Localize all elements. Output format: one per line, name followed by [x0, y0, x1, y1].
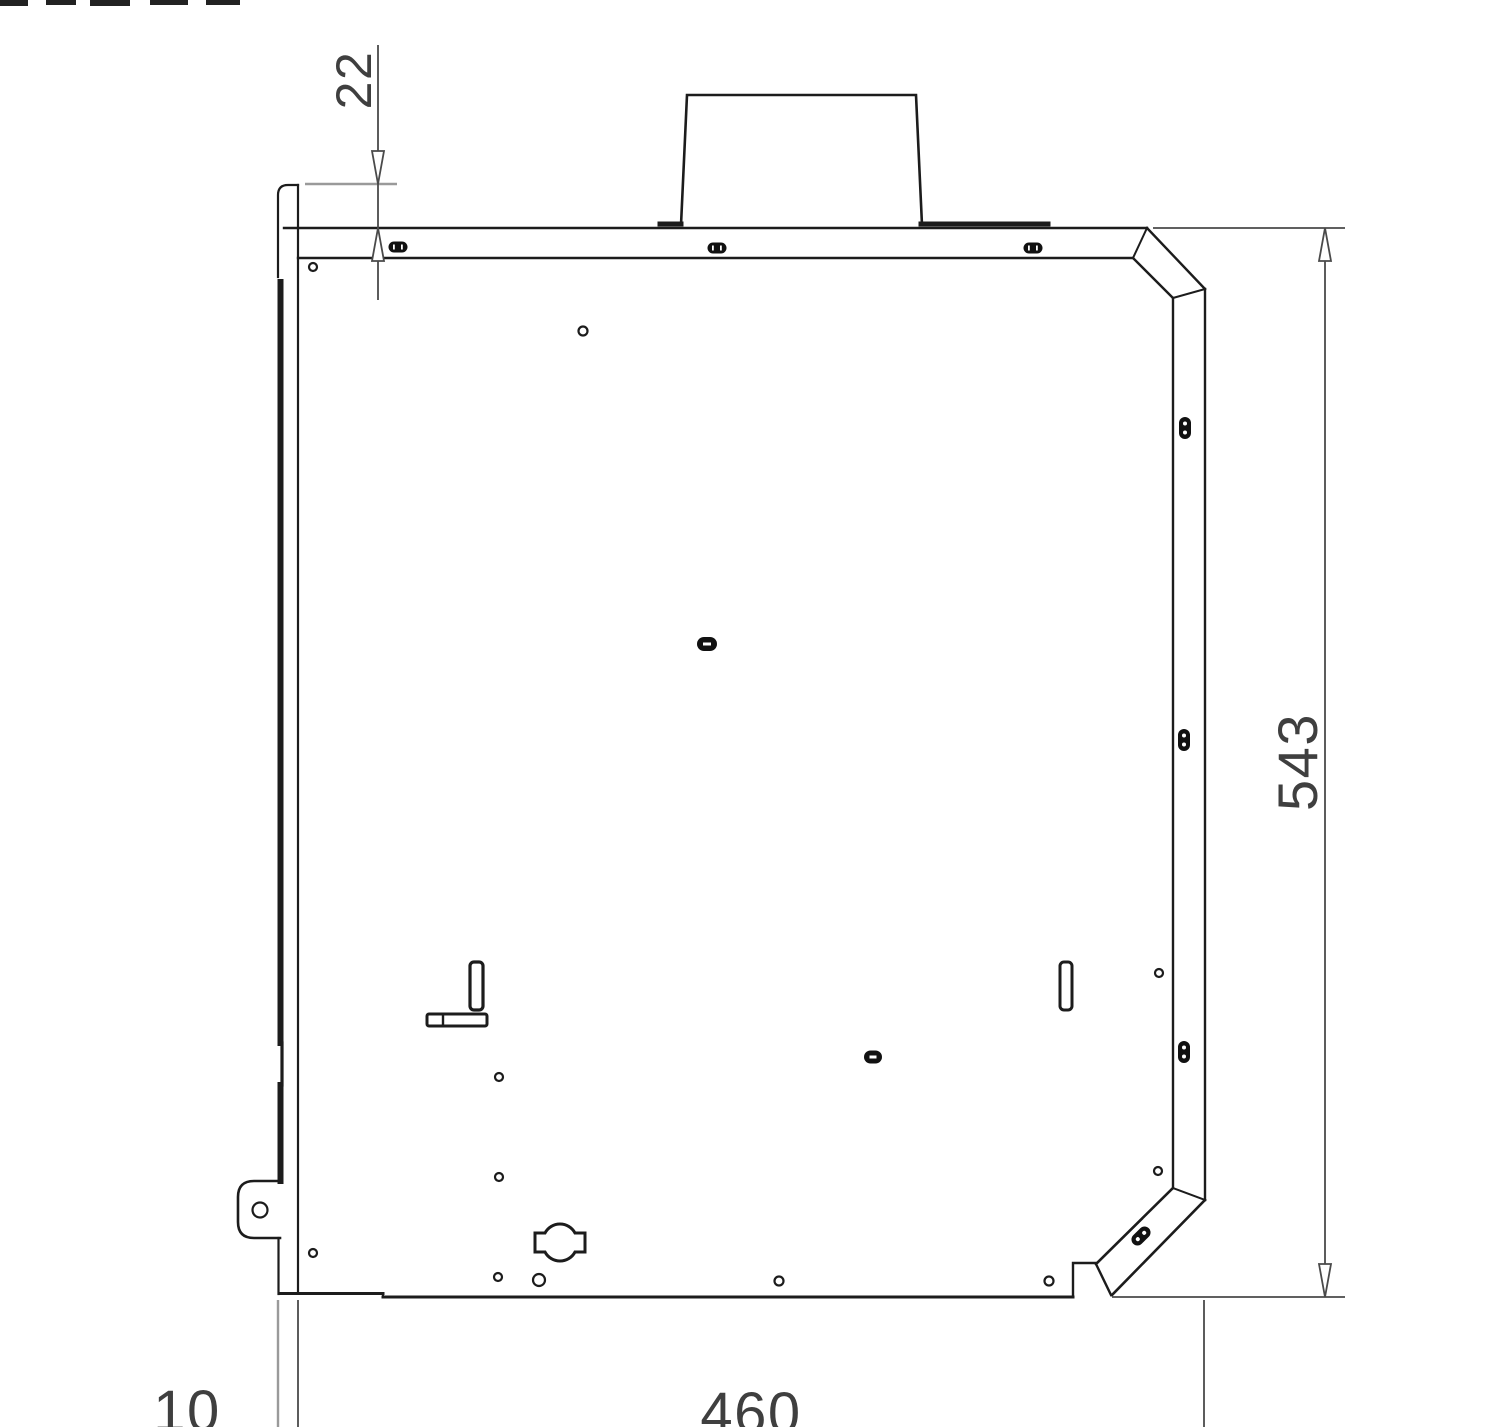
fastener-detail	[720, 246, 722, 251]
arrowhead-up	[372, 228, 384, 261]
hole	[1155, 969, 1163, 977]
hole	[1154, 1167, 1162, 1175]
fastener-top-1	[389, 242, 408, 253]
small-holes	[309, 263, 1163, 1286]
fastener-detail	[1182, 734, 1186, 738]
fastener-detail	[712, 246, 714, 251]
artifact-mark	[46, 0, 76, 5]
fastener-right-3	[1178, 1041, 1190, 1063]
chamfer-miter-top	[1133, 228, 1147, 258]
fastener-detail	[1036, 246, 1038, 251]
fastener-detail	[1182, 1055, 1186, 1059]
fastener-top-3	[1024, 243, 1043, 254]
fastener-lower	[864, 1051, 882, 1064]
fastener-detail	[1183, 422, 1187, 426]
rear-panel	[278, 185, 298, 1294]
fastener-body	[1178, 1041, 1190, 1063]
fastener-detail	[1183, 431, 1187, 435]
fastener-detail	[1028, 246, 1030, 251]
top-edge-artifact-marks	[0, 0, 240, 6]
dimension-text-460: 460	[700, 1381, 801, 1427]
vertical-slot-right	[1060, 962, 1072, 1010]
fastener-body	[389, 242, 408, 253]
dimension-flue-offset: 22	[305, 45, 397, 300]
arrowhead-down	[1319, 1264, 1331, 1297]
fasteners	[389, 242, 1192, 1249]
fastener-detail	[703, 643, 711, 646]
artifact-mark	[0, 0, 28, 6]
artifact-mark	[90, 0, 130, 6]
fastener-detail	[1182, 1046, 1186, 1050]
hole	[775, 1277, 784, 1286]
flue-collar-outline	[681, 95, 922, 225]
fastener-detail	[870, 1056, 877, 1059]
dimension-overall-height: 543	[1112, 228, 1345, 1297]
fastener-right-2	[1178, 729, 1190, 751]
bottom-chamfer-miter-top	[1173, 1188, 1205, 1200]
hole	[533, 1274, 545, 1286]
artifact-mark	[206, 0, 240, 5]
hole	[494, 1273, 502, 1281]
flue-collar	[660, 95, 1048, 225]
bottom-chamfer-outer-line	[1112, 1200, 1205, 1295]
bottom-edge	[281, 1294, 1073, 1298]
dimension-rear-gap: 10	[153, 1300, 298, 1427]
fastener-body	[708, 243, 727, 254]
bottom-chamfer-inner-line	[1096, 1188, 1173, 1264]
arrowhead-up	[1319, 228, 1331, 261]
chamfer-inner-line	[1133, 258, 1173, 298]
chamfer-miter-bottom	[1173, 289, 1205, 298]
fastener-detail	[1182, 743, 1186, 747]
hole	[495, 1073, 503, 1081]
fastener-detail	[393, 245, 395, 250]
hole	[579, 327, 588, 336]
panel-cutouts	[427, 962, 1072, 1261]
mounting-tab-hole	[253, 1203, 268, 1218]
bottom-foot-notch	[1073, 1263, 1096, 1296]
fastener-body	[1179, 417, 1191, 439]
hole	[309, 263, 317, 271]
hole	[1045, 1277, 1054, 1286]
rear-panel-top-corner	[278, 185, 298, 277]
top-right-chamfer	[1133, 228, 1205, 298]
fastener-body	[1024, 243, 1043, 254]
grommet-cutout	[535, 1224, 585, 1261]
hole	[495, 1173, 503, 1181]
dimension-text-10: 10	[153, 1379, 221, 1427]
mounting-tab	[238, 1181, 280, 1238]
dimension-overall-depth: 460	[700, 1300, 1204, 1427]
bottom-chamfer-end-cap	[1096, 1264, 1111, 1295]
fastener-top-2	[708, 243, 727, 254]
hole	[309, 1249, 317, 1257]
vertical-slot-left	[470, 962, 483, 1010]
dimension-text-543: 543	[1266, 713, 1329, 811]
fastener-center	[697, 637, 717, 651]
fastener-right-1	[1179, 417, 1191, 439]
fastener-body	[1178, 729, 1190, 751]
horizontal-slot	[427, 1014, 487, 1026]
fastener-detail	[401, 245, 403, 250]
dimension-text-22: 22	[326, 51, 382, 110]
arrowhead-down	[372, 151, 384, 184]
drawing-page: 22 543 10 460	[0, 0, 1500, 1427]
artifact-mark	[150, 0, 188, 5]
technical-drawing: 22 543 10 460	[0, 0, 1500, 1427]
